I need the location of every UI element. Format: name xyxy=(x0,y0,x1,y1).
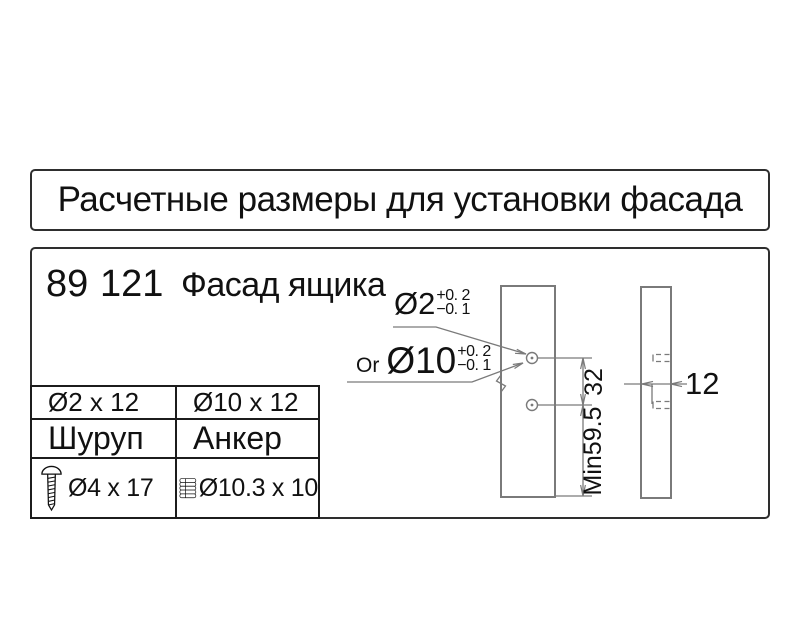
tolerance-d10: +0. 2 −0. 1 xyxy=(457,345,491,373)
page: Расчетные размеры для установки фасада 8… xyxy=(0,0,800,640)
facade-side-view xyxy=(641,287,671,498)
tolerance-d2: +0. 2 −0. 1 xyxy=(436,289,470,317)
hole-label-d10: Or Ø10 +0. 2 −0. 1 xyxy=(356,342,491,379)
facade-front-view xyxy=(501,286,555,497)
dimension-12: 12 xyxy=(685,366,719,402)
dimension-min59-5: Min59.5 xyxy=(579,396,607,506)
hole-label-d2: Ø2 +0. 2 −0. 1 xyxy=(394,288,470,319)
